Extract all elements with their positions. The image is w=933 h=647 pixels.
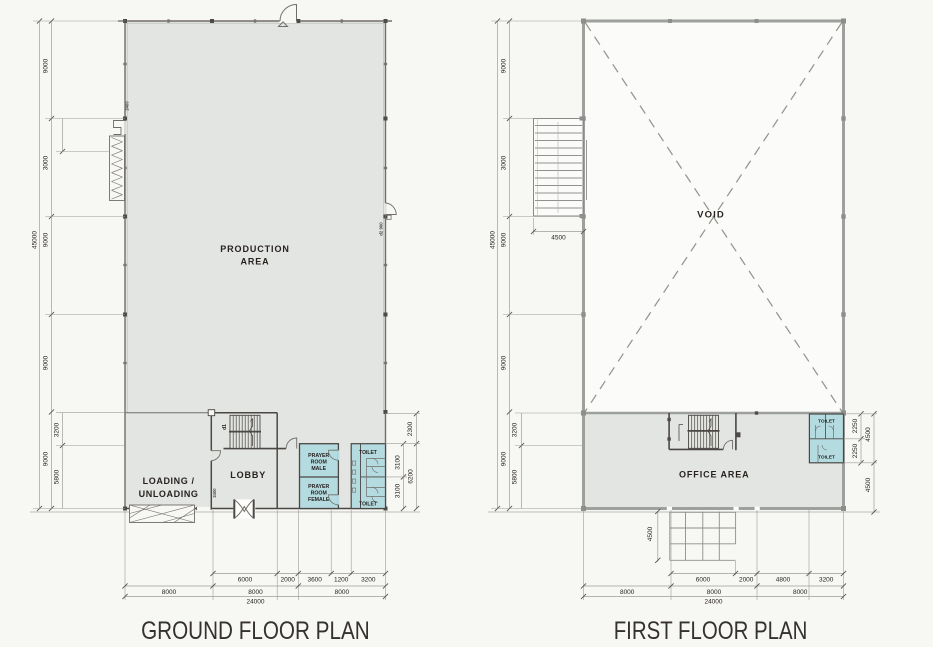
svg-text:d2 900: d2 900 <box>379 222 384 236</box>
svg-text:PRAYER: PRAYER <box>308 453 329 459</box>
svg-text:8000: 8000 <box>162 589 177 596</box>
svg-text:8000: 8000 <box>793 589 808 596</box>
svg-text:9000: 9000 <box>43 451 50 466</box>
svg-text:4500: 4500 <box>865 477 872 492</box>
svg-text:8000: 8000 <box>707 589 722 596</box>
svg-text:3000: 3000 <box>43 155 50 170</box>
svg-text:1200: 1200 <box>334 577 349 584</box>
svg-text:3200: 3200 <box>361 577 376 584</box>
svg-text:9000: 9000 <box>43 355 50 370</box>
svg-text:PRAYER: PRAYER <box>308 484 329 490</box>
svg-text:TOILET: TOILET <box>359 501 377 507</box>
svg-text:9000: 9000 <box>501 451 508 466</box>
svg-text:PRODUCTION: PRODUCTION <box>220 244 290 254</box>
svg-text:ROOM: ROOM <box>311 459 327 465</box>
svg-text:5800: 5800 <box>54 469 61 484</box>
svg-text:2300: 2300 <box>407 421 414 436</box>
svg-text:8000: 8000 <box>248 589 263 596</box>
svg-text:24000: 24000 <box>246 599 264 606</box>
svg-text:4500: 4500 <box>647 526 654 541</box>
svg-text:6000: 6000 <box>696 577 711 584</box>
svg-text:4800: 4800 <box>776 577 791 584</box>
svg-text:9000: 9000 <box>501 355 508 370</box>
svg-text:AREA: AREA <box>240 257 269 267</box>
svg-text:6200: 6200 <box>407 469 414 484</box>
svg-text:24000: 24000 <box>704 599 722 606</box>
svg-text:3600: 3600 <box>307 577 322 584</box>
svg-text:8000: 8000 <box>620 589 635 596</box>
svg-text:3100: 3100 <box>395 455 402 470</box>
svg-text:6000: 6000 <box>238 577 253 584</box>
svg-text:3100: 3100 <box>395 483 402 498</box>
svg-text:2250: 2250 <box>852 418 859 433</box>
svg-text:3000: 3000 <box>501 155 508 170</box>
svg-text:9000: 9000 <box>43 232 50 247</box>
svg-text:TOILET: TOILET <box>818 419 835 425</box>
svg-text:2000: 2000 <box>280 577 295 584</box>
svg-text:VOID: VOID <box>697 210 725 221</box>
svg-text:4500: 4500 <box>865 427 872 442</box>
svg-text:8000: 8000 <box>335 589 350 596</box>
svg-text:2000: 2000 <box>739 577 754 584</box>
svg-text:OFFICE AREA: OFFICE AREA <box>679 470 750 480</box>
svg-text:3200: 3200 <box>819 577 834 584</box>
svg-text:TOILET: TOILET <box>359 450 377 456</box>
svg-text:2400: 2400 <box>212 488 217 498</box>
svg-text:TOILET: TOILET <box>818 455 835 461</box>
svg-text:d1: d1 <box>222 424 228 430</box>
svg-text:LOBBY: LOBBY <box>230 470 266 480</box>
svg-text:FIRST FLOOR PLAN: FIRST FLOOR PLAN <box>614 617 808 645</box>
svg-text:FEMALE: FEMALE <box>308 497 330 503</box>
svg-text:9000: 9000 <box>501 232 508 247</box>
svg-text:3200: 3200 <box>512 422 519 437</box>
svg-text:UNLOADING: UNLOADING <box>139 489 199 499</box>
svg-text:ROOM: ROOM <box>311 490 327 496</box>
svg-text:LOADING /: LOADING / <box>143 476 195 486</box>
svg-text:3200: 3200 <box>54 422 61 437</box>
svg-text:MALE: MALE <box>311 466 326 472</box>
svg-text:45000: 45000 <box>490 231 497 249</box>
svg-text:2400: 2400 <box>125 101 130 111</box>
svg-text:GROUND FLOOR PLAN: GROUND FLOOR PLAN <box>141 617 370 645</box>
svg-text:9000: 9000 <box>43 58 50 73</box>
svg-text:2250: 2250 <box>852 443 859 458</box>
svg-text:45000: 45000 <box>32 231 39 249</box>
svg-text:5800: 5800 <box>512 469 519 484</box>
svg-text:9000: 9000 <box>501 58 508 73</box>
svg-text:4500: 4500 <box>551 234 566 241</box>
